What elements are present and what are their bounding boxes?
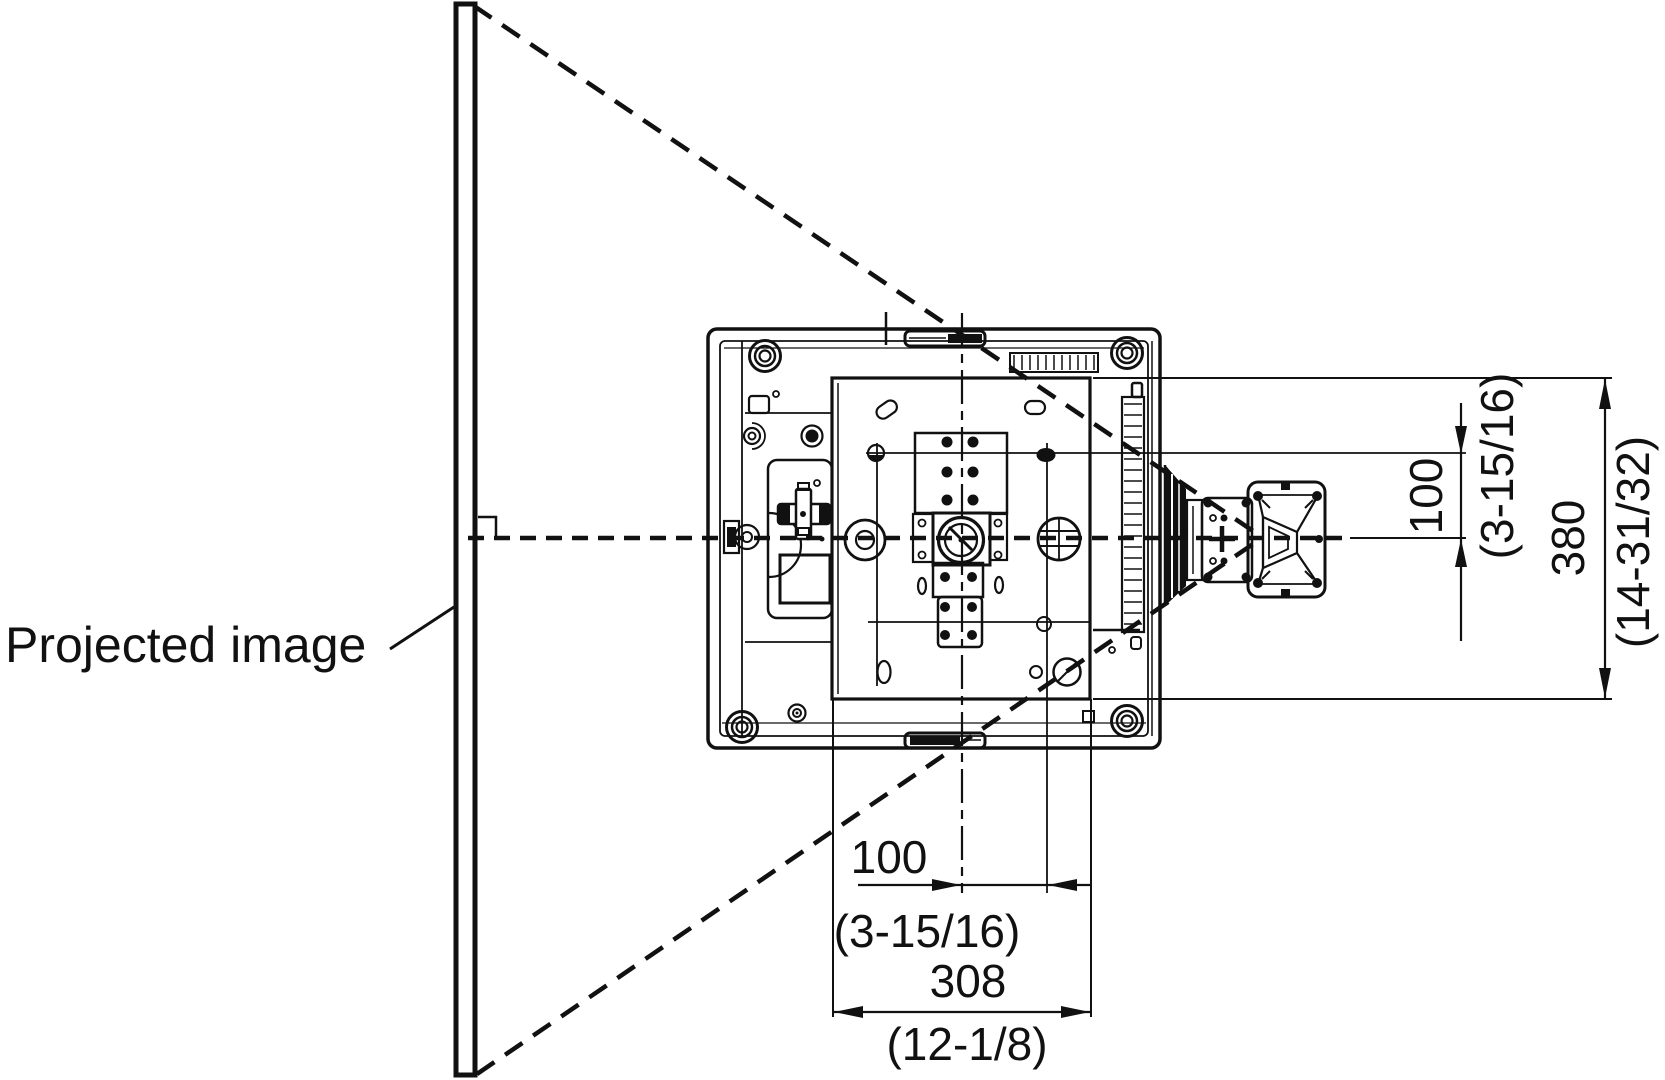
dim-value-inches: (14-31/32): [1607, 436, 1659, 648]
dim-value-mm: 100: [851, 831, 928, 883]
corner-boss-top-left: [750, 341, 781, 372]
top-handle-slot: [905, 331, 985, 346]
arrowhead-left: [1048, 879, 1077, 891]
screw-head: [744, 428, 760, 444]
plate-slot: [1025, 401, 1045, 414]
perpendicular-mark: [478, 517, 496, 538]
lens-hood: [1166, 466, 1186, 605]
plate-oval-slot: [878, 661, 891, 683]
arrowhead-down: [1455, 426, 1467, 454]
screen-assembly: Projected image: [5, 4, 496, 1075]
focus-adjuster: [778, 483, 830, 539]
mount-hole-bottom-right: [1037, 617, 1051, 631]
dim-value-inches: (3-15/16): [834, 905, 1021, 957]
switch-cutout: [749, 396, 769, 413]
side-vent-grille: [1093, 383, 1144, 653]
left-internal-details: [724, 391, 832, 722]
projected-image-label: Projected image: [5, 617, 366, 673]
corner-boss-top-right: [1112, 338, 1143, 369]
dim-value-inches: (12-1/8): [886, 1018, 1047, 1070]
label-leader-line: [390, 607, 454, 649]
arrowhead-up: [1455, 539, 1467, 567]
arrowhead-up: [1599, 379, 1611, 409]
dim-value-mm: 308: [930, 955, 1007, 1007]
top-vent-grille: [1010, 353, 1098, 372]
mount-hole-top-right: [1037, 448, 1056, 462]
drawing-canvas: Projected image: [0, 0, 1665, 1080]
mount-plate: [832, 378, 1466, 893]
optical-axis-lines: [468, 312, 1466, 893]
arrowhead-down: [1599, 668, 1611, 698]
dim-value-inches: (3-15/16): [1471, 373, 1523, 560]
arrowhead-left: [834, 1006, 863, 1018]
cone-lower-edge: [477, 542, 1256, 1074]
dimension-diagram: Projected image: [0, 0, 1665, 1080]
dim-value-mm: 100: [1400, 458, 1452, 535]
dim-value-mm: 380: [1542, 500, 1594, 577]
filter-cutout: [780, 555, 830, 603]
plate-slot: [874, 398, 899, 421]
arrowhead-right: [932, 879, 961, 891]
dimension-right-100: 100 (3-15/16): [1400, 373, 1523, 641]
cone-upper-edge: [474, 6, 1256, 533]
arrowhead-right: [1061, 1006, 1090, 1018]
